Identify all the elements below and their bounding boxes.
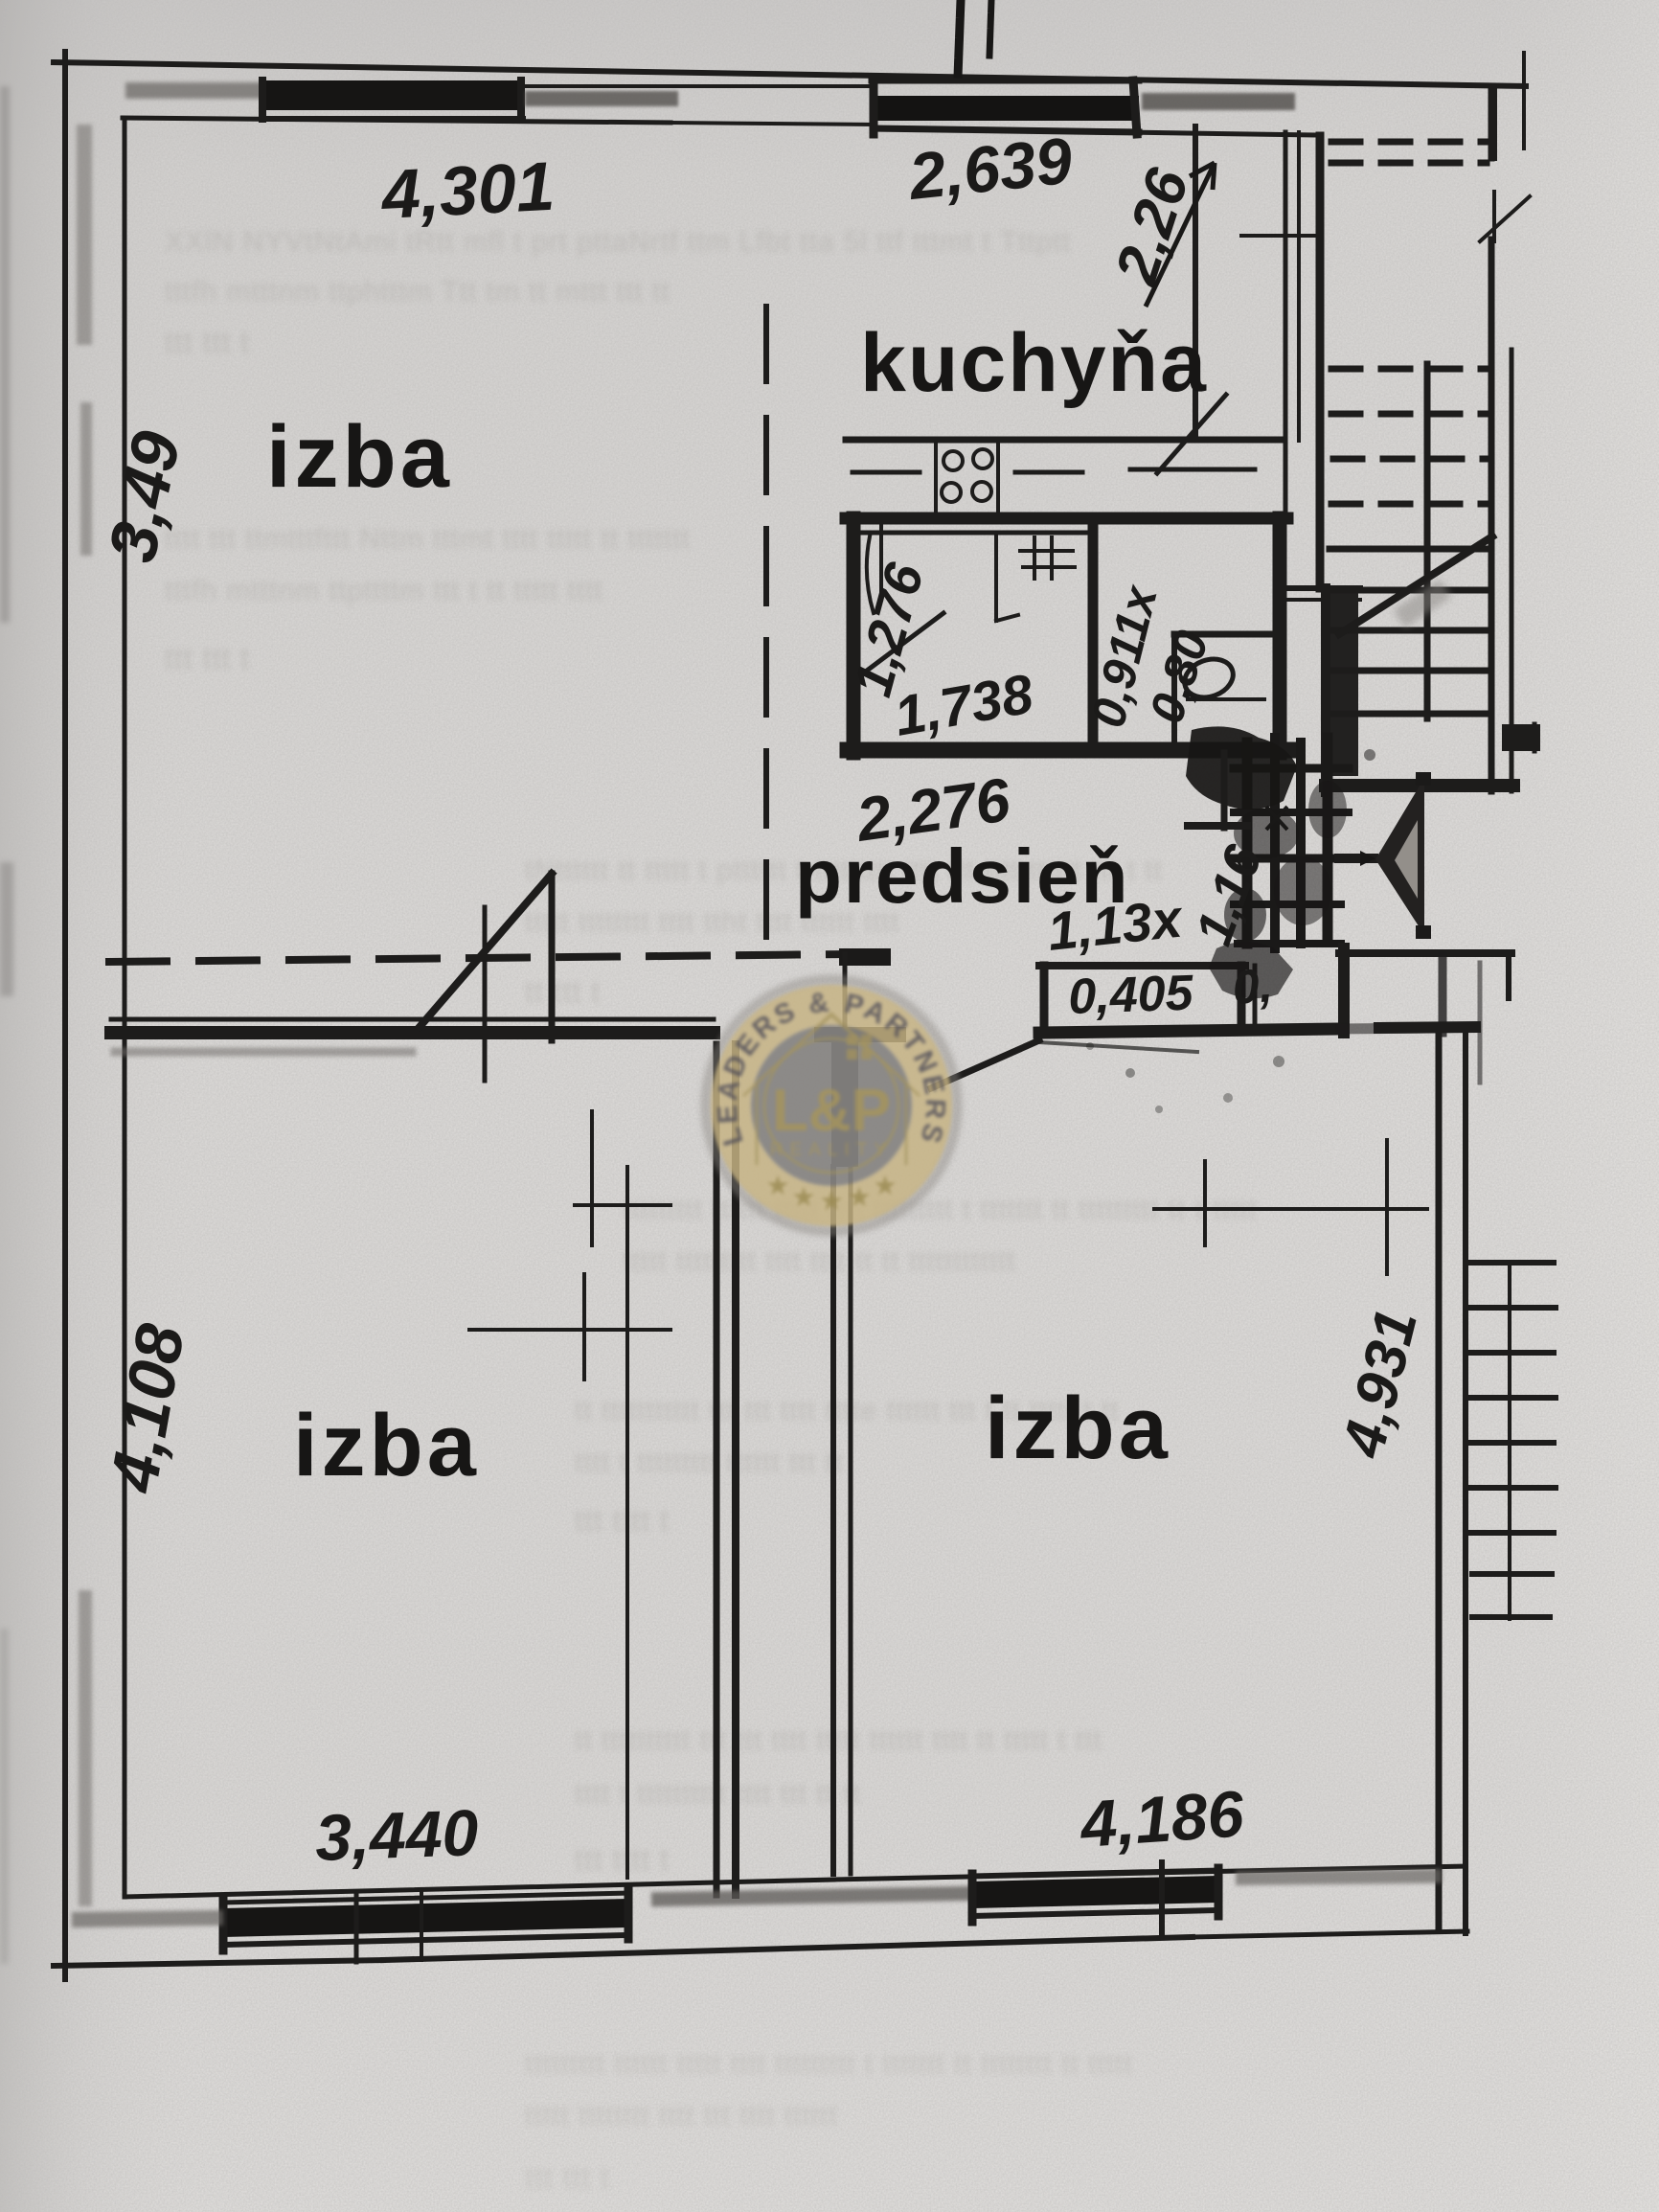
svg-text:★: ★ [847,1182,871,1212]
svg-text:izba: izba [266,408,453,506]
svg-text:★: ★ [765,1171,789,1200]
svg-text:ttttt tttttttt tttt ttt tttt t: ttttt tttttttt tttt ttt tttt tttttt [525,2100,838,2132]
svg-text:L&P: L&P [772,1078,891,1144]
svg-text:ttt ttt t: ttt ttt t [165,641,250,675]
svg-text:3,440: 3,440 [314,1796,480,1875]
svg-text:XXlN NYVtNtAmi tRtt mfl t prt: XXlN NYVtNtAmi tRtt mfl t prt pttaNrtf t… [165,226,1071,258]
svg-text:ttttttttt tttttt ttttt tttt tt: ttttttttt tttttt ttttt tttt ttttttttt t … [525,2048,1133,2080]
svg-text:ttt ttt t: ttt ttt t [525,2160,610,2195]
svg-text:REALITY: REALITY [770,1140,893,1160]
svg-text:ttt tttt t: ttt tttt t [575,1503,670,1538]
svg-text:0,405: 0,405 [1067,965,1194,1025]
svg-text:ttttt ttttttttt tttt tttt tt t: ttttt ttttttttt tttt tttt tt tt tttttttt… [623,1245,1016,1277]
svg-text:tttfh mtttnm ttphtttm Ttt tm: tttfh mtttnm ttphtttm Ttt tm tt mttt ttt… [165,276,670,308]
svg-text:kuchyňa: kuchyňa [860,317,1208,409]
svg-text:tttt ttt ttmtttfttt Nttm tttmt: tttt ttt ttmtttfttt Nttm tttmt tttt tttt… [165,523,691,555]
svg-text:ttt ttt t: ttt ttt t [165,325,250,359]
svg-text:tt tttttttttt ttt ttt tttt ttt: tt tttttttttt ttt ttt tttt ttttt tttttt … [575,1724,1102,1756]
svg-text:★: ★ [819,1186,843,1216]
svg-text:ttt tttt t: ttt tttt t [575,1842,670,1877]
svg-text:tt ttt t: tt ttt t [525,974,601,1009]
svg-text:izba: izba [985,1380,1171,1477]
svg-text:4,186: 4,186 [1077,1777,1247,1861]
svg-text:tttfh mtttnm ttpttttm ttt t t: tttfh mtttnm ttpttttm ttt t tt ttttt ttt… [165,575,603,606]
svg-text:tttt t ttttttttt tttttt ttt tt: tttt t ttttttttt tttttt ttt tt [575,1447,843,1478]
svg-text:0,: 0, [1231,958,1275,1015]
svg-text:★: ★ [791,1182,815,1212]
svg-text:4,301: 4,301 [378,148,557,234]
svg-text:izba: izba [293,1397,480,1494]
svg-text:★: ★ [873,1171,897,1200]
